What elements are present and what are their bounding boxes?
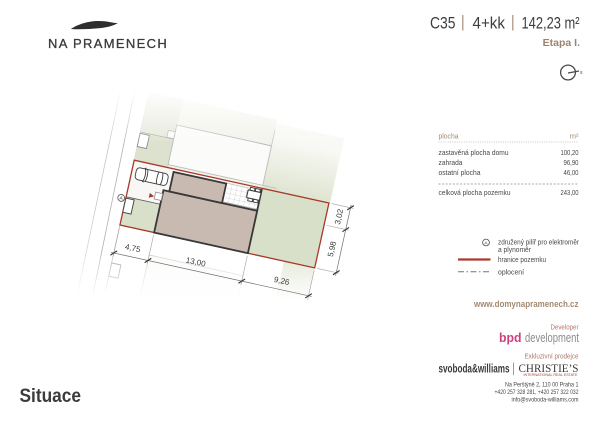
- svg-text:zastavěná plocha domu: zastavěná plocha domu: [439, 148, 509, 157]
- svg-text:96,90: 96,90: [564, 158, 579, 167]
- svg-text:združený pilíř pro elektroměr: združený pilíř pro elektroměr: [498, 240, 580, 247]
- svg-text:Exkluzivní prodejce: Exkluzivní prodejce: [525, 354, 579, 361]
- svg-text:ostatní plocha: ostatní plocha: [439, 168, 482, 177]
- svg-text:bpd: bpd: [499, 331, 522, 345]
- svg-text:hranice pozemku: hranice pozemku: [498, 257, 546, 264]
- svg-text:development: development: [525, 331, 579, 345]
- svg-text:Etapa I.: Etapa I.: [543, 37, 580, 49]
- svg-text:plocha: plocha: [439, 132, 460, 141]
- svg-text:4+kk: 4+kk: [473, 14, 506, 33]
- svg-text:a plynoměr: a plynoměr: [498, 247, 532, 254]
- svg-text:m²: m²: [570, 132, 579, 141]
- svg-text:svoboda&williams: svoboda&williams: [439, 364, 510, 376]
- svg-text:Situace: Situace: [20, 386, 82, 407]
- svg-text:243,00: 243,00: [561, 188, 579, 197]
- svg-text:+420 257 328 281, +420 257 322: +420 257 328 281, +420 257 322 032: [495, 389, 579, 396]
- svg-text:100,20: 100,20: [561, 148, 579, 157]
- svg-text:celková plocha pozemku: celková plocha pozemku: [439, 188, 511, 197]
- svg-text:Na Perštýně 2, 110 00 Praha 1: Na Perštýně 2, 110 00 Praha 1: [505, 382, 579, 389]
- svg-text:www.domynapramenech.cz: www.domynapramenech.cz: [473, 299, 579, 310]
- svg-text:INTERNATIONAL REAL ESTATE: INTERNATIONAL REAL ESTATE: [524, 373, 578, 377]
- svg-text:46,00: 46,00: [564, 168, 579, 177]
- svg-text:142,23 m²: 142,23 m²: [522, 14, 580, 33]
- svg-text:C35: C35: [430, 14, 456, 33]
- svg-text:oplocení: oplocení: [498, 269, 524, 276]
- svg-text:zahrada: zahrada: [439, 158, 464, 167]
- svg-text:info@svoboda-williams.com: info@svoboda-williams.com: [512, 397, 579, 404]
- svg-text:NA PRAMENECH: NA PRAMENECH: [48, 36, 168, 51]
